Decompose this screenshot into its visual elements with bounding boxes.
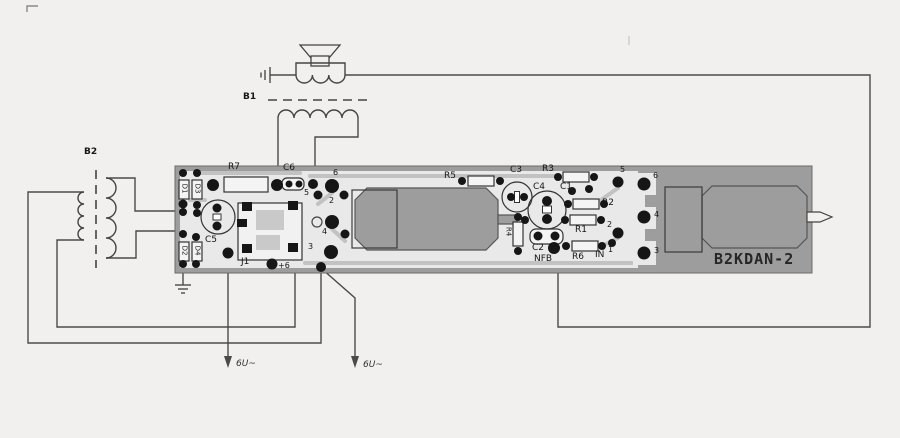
- pad: [179, 230, 187, 238]
- pad-pin4: [325, 215, 339, 229]
- pad: [213, 222, 222, 231]
- pad-pin6: [325, 179, 339, 193]
- label-d2: D2: [181, 241, 188, 261]
- pin-label-right-1: 1: [608, 246, 613, 254]
- pcb-wiring-diagram: B1 B2 B2KDAN-2 6U~ 6U~ +6 R7 C6 C5 J1 D1…: [0, 0, 900, 438]
- pad: [561, 216, 569, 224]
- b2-secondary-top-lead: [106, 178, 181, 211]
- strip-finger: [645, 229, 656, 241]
- label-d3: D3: [194, 179, 201, 199]
- pad: [534, 232, 543, 241]
- label-r7: R7: [228, 163, 240, 172]
- pad: [598, 242, 606, 250]
- module-left-outline: [352, 188, 517, 250]
- pad: [308, 179, 318, 189]
- pad: [179, 169, 187, 177]
- pad: [520, 193, 528, 201]
- label-c1: C1: [560, 183, 572, 192]
- pad-module-4: [638, 211, 651, 224]
- pad-square: [242, 244, 252, 253]
- label-b2: B2: [84, 148, 97, 157]
- b2-primary-coil: [78, 192, 84, 240]
- label-b1: B1: [243, 93, 256, 102]
- b1-secondary-coil: [278, 110, 358, 118]
- pad: [551, 232, 560, 241]
- transformer-b1: [268, 63, 368, 118]
- pad-j1: [223, 248, 234, 259]
- label-r2: R2: [602, 199, 614, 208]
- pad: [271, 179, 283, 191]
- resistor-r7: [224, 177, 268, 192]
- pad-pin2-right: [613, 228, 624, 239]
- pin-label-left-1: 1: [343, 232, 348, 240]
- pad: [585, 185, 593, 193]
- pad: [316, 262, 326, 272]
- pin-label-module-6: 6: [653, 172, 658, 180]
- label-plus6: +6: [278, 262, 290, 270]
- pad-module-6: [638, 178, 651, 191]
- pad: [193, 209, 201, 217]
- pad: [542, 214, 552, 224]
- module-pin: [807, 212, 832, 222]
- circuit-svg: [0, 0, 900, 438]
- pad-pin3: [324, 245, 338, 259]
- pad: [542, 196, 552, 206]
- pad: [562, 242, 570, 250]
- pad: [590, 173, 598, 181]
- pad: [296, 181, 303, 188]
- pad-square: [288, 201, 298, 210]
- pad: [192, 260, 200, 268]
- pin-label-module-4: 4: [654, 211, 659, 219]
- pin-label-left-3: 3: [308, 243, 313, 251]
- pin-label-right-5: 5: [620, 166, 625, 174]
- label-r4: R4: [505, 222, 512, 242]
- label-d4: D4: [194, 241, 201, 261]
- j1-inner-patch: [256, 210, 284, 230]
- pad: [207, 179, 219, 191]
- resistor-r5: [468, 176, 494, 186]
- transformer-b2: [78, 170, 116, 268]
- mounting-hole: [312, 217, 322, 227]
- pad: [179, 260, 187, 268]
- label-in: IN: [595, 251, 604, 260]
- supply-wire-right: [322, 269, 355, 357]
- ground-icon: [261, 67, 270, 83]
- pad: [514, 247, 522, 255]
- j1-inner-patch: [256, 235, 280, 250]
- label-j1: J1: [241, 258, 249, 267]
- pad: [193, 169, 201, 177]
- pad: [521, 216, 529, 224]
- label-supply-left: 6U~: [236, 360, 256, 369]
- pad: [554, 173, 562, 181]
- pin-label-left-2: 2: [329, 197, 334, 205]
- scan-artifact-mark: [27, 6, 38, 12]
- resistor-r2: [573, 199, 599, 209]
- pad: [496, 177, 504, 185]
- resistor-r3: [563, 172, 589, 182]
- pad: [564, 200, 572, 208]
- label-nfb: NFB: [534, 255, 552, 264]
- resistor-r1: [570, 215, 596, 225]
- label-r5: R5: [444, 172, 456, 181]
- strip-finger: [645, 195, 656, 207]
- label-r6: R6: [572, 253, 584, 262]
- label-d1: D1: [181, 179, 188, 199]
- pad: [597, 216, 605, 224]
- label-r3: R3: [542, 165, 554, 174]
- label-c5: C5: [205, 236, 217, 245]
- pin-label-left-5: 5: [304, 189, 309, 197]
- pad: [193, 201, 201, 209]
- label-c3: C3: [510, 166, 522, 175]
- pad: [507, 193, 515, 201]
- pad: [286, 181, 293, 188]
- arrow-down-icon: [224, 356, 232, 368]
- ground-icon: [175, 285, 191, 293]
- arrow-down-icon: [351, 356, 359, 368]
- pin-label-left-4: 4: [322, 228, 327, 236]
- pad: [514, 213, 522, 221]
- pad: [213, 204, 222, 213]
- label-module-name: B2KDAN-2: [714, 250, 794, 268]
- pad-square: [237, 219, 247, 227]
- pad-pin5: [314, 191, 323, 200]
- label-c6: C6: [283, 164, 295, 173]
- resistor-r4: [513, 222, 523, 246]
- pad-module-3: [638, 247, 651, 260]
- pad-pin5-right: [613, 177, 624, 188]
- pad: [179, 200, 188, 209]
- pin-label-module-3: 3: [654, 247, 659, 255]
- label-supply-right: 6U~: [363, 361, 383, 370]
- pad-nfb-out: [548, 242, 560, 254]
- pad-plus6: [267, 259, 278, 270]
- label-c2: C2: [532, 244, 544, 253]
- label-r1: R1: [575, 226, 587, 235]
- b2-secondary-coil: [106, 178, 116, 258]
- b1-primary-coil: [296, 75, 345, 83]
- label-c4: C4: [533, 183, 545, 192]
- pad: [458, 177, 466, 185]
- pad-square: [242, 202, 252, 211]
- b2-secondary-bottom-lead: [106, 231, 181, 258]
- pad-square: [288, 243, 298, 252]
- pin-label-left-6: 6: [333, 169, 338, 177]
- pad-pin2: [340, 191, 349, 200]
- pad: [179, 208, 187, 216]
- pin-label-right-2: 2: [607, 221, 612, 229]
